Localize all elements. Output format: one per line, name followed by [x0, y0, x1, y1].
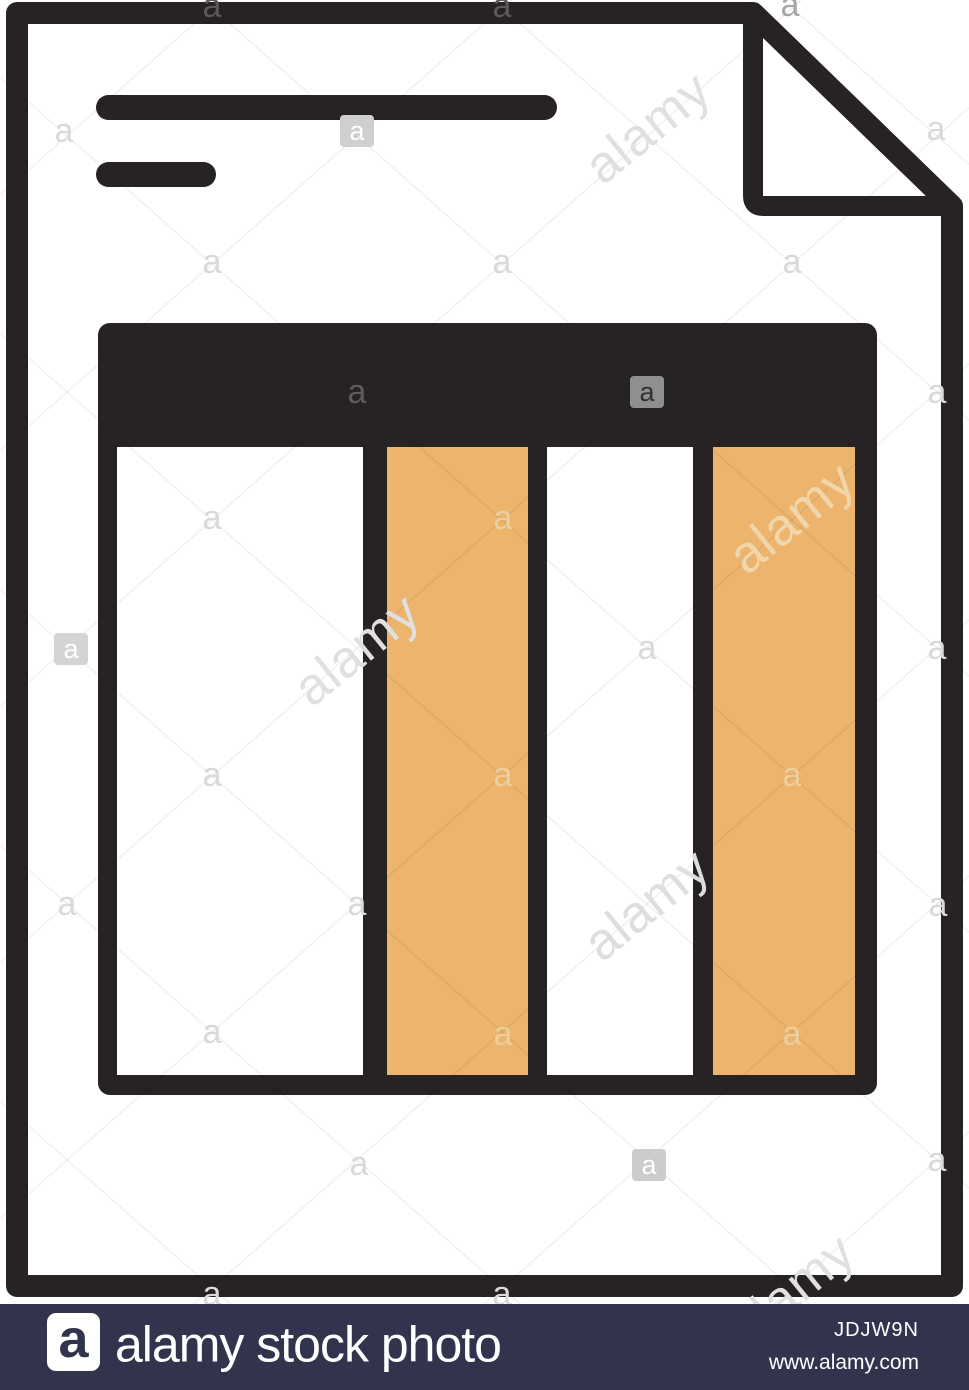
- table-column-4: [713, 447, 855, 1075]
- document-table-icon: [0, 0, 969, 1390]
- text-line-short: [96, 162, 216, 187]
- stock-photo-canvas: aaaaaaaaaaaaaaaaaaaaaaaaaaaaaaaalamyalam…: [0, 0, 969, 1390]
- footer-right-block: JDJW9N www.alamy.com: [769, 1319, 919, 1375]
- image-id: JDJW9N: [769, 1319, 919, 1342]
- text-line-long: [96, 95, 557, 120]
- alamy-footer-bar: a alamy stock photo JDJW9N www.alamy.com: [0, 1304, 969, 1390]
- alamy-brand-text: alamy stock photo: [115, 1316, 501, 1374]
- table-column-3: [547, 447, 693, 1075]
- alamy-logo: a: [47, 1313, 100, 1371]
- alamy-website: www.alamy.com: [769, 1351, 919, 1375]
- table-column-1: [117, 447, 363, 1075]
- table-column-2: [387, 447, 528, 1075]
